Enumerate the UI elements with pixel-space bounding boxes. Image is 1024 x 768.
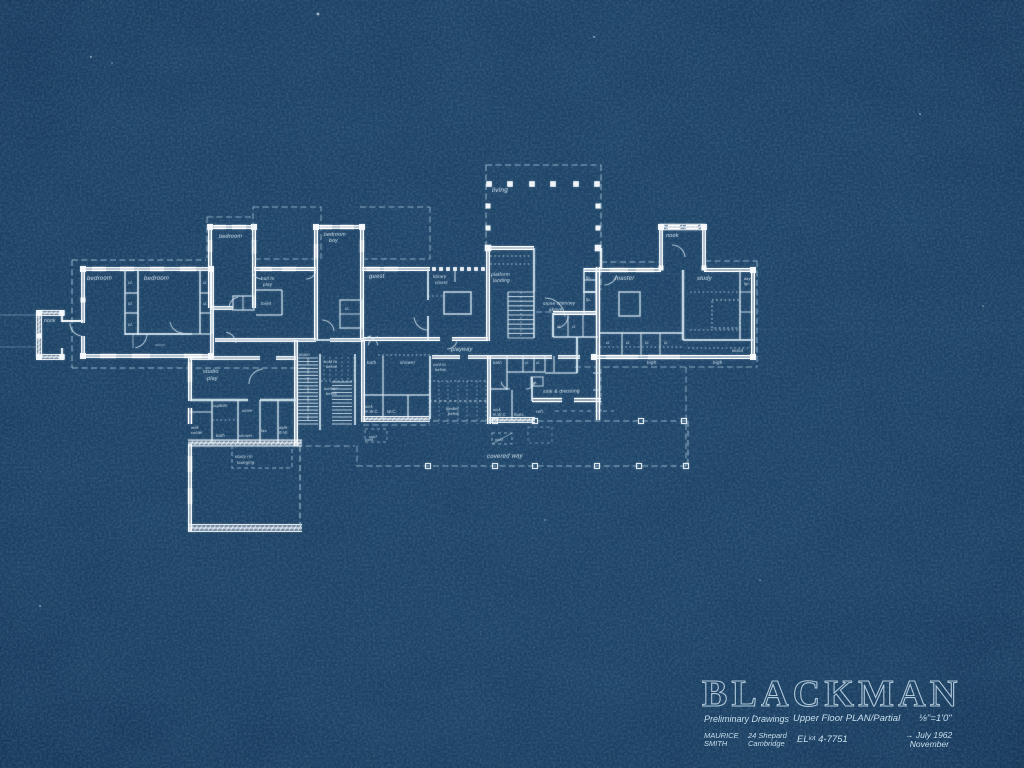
svg-text:below: below [326,364,338,369]
svg-text:lgt.: lgt. [744,282,750,286]
svg-text:landing: landing [493,278,510,284]
svg-text:cl.: cl. [345,306,350,311]
svg-text:cl.: cl. [664,340,669,345]
svg-text:fp.: fp. [586,275,591,280]
svg-text:living: living [492,187,508,194]
svg-text:bedroom: bedroom [87,276,112,282]
svg-text:hall to: hall to [261,276,275,281]
svg-text:lav.: lav. [261,428,268,433]
svg-text:bath: bath [493,360,503,365]
svg-text:R.W.C.: R.W.C. [493,412,507,417]
svg-text:play: play [262,282,273,287]
svg-text:cl.: cl. [626,340,631,345]
svg-text:below: below [435,367,447,372]
svg-text:shower: shower [400,360,416,365]
svg-text:cl.: cl. [645,340,650,345]
svg-text:nook: nook [666,233,679,239]
svg-text:W.C.: W.C. [387,409,397,414]
svg-text:day: day [744,277,752,281]
svg-text:cl.: cl. [525,360,530,365]
svg-text:down: down [299,352,310,357]
svg-text:cl.: cl. [536,360,541,365]
svg-text:master: master [615,276,635,282]
svg-text:bedroom: bedroom [219,234,242,240]
svg-text:cl.: cl. [203,301,208,306]
svg-text:below: below [448,411,460,416]
svg-text:stove: stove [242,408,253,413]
svg-text:library: library [433,274,447,279]
svg-text:bedroom: bedroom [144,276,169,282]
svg-text:R.W.: R.W. [279,430,288,435]
svg-text:closet: closet [435,280,448,285]
svg-text:fp.: fp. [586,297,591,302]
svg-text:toilet: toilet [261,301,272,306]
svg-text:below: below [326,391,338,396]
svg-text:playway: playway [450,347,474,353]
svg-text:cl.: cl. [557,324,562,329]
svg-text:cl.: cl. [128,322,133,327]
svg-text:guest: guest [369,274,385,280]
svg-text:bath: bath [367,360,377,365]
svg-text:cl.: cl. [203,280,208,285]
svg-text:cl.: cl. [128,301,133,306]
svg-text:stone chimney: stone chimney [543,300,576,306]
svg-text:shower: shower [239,434,253,438]
svg-text:study rm: study rm [235,454,253,459]
svg-text:refr.: refr. [536,409,545,414]
svg-text:bath: bath [216,433,226,438]
svg-text:high: high [713,360,723,365]
svg-text:platform: platform [490,272,510,278]
svg-text:nook: nook [44,318,56,324]
svg-text:lounging: lounging [237,460,255,465]
svg-text:cl.: cl. [572,324,577,329]
svg-text:flues: flues [514,412,525,417]
svg-text:cl.: cl. [606,340,611,345]
svg-text:boy: boy [329,238,338,244]
svg-text:covered way: covered way [487,453,524,460]
svg-text:cupbds: cupbds [213,403,227,408]
svg-text:wood: wood [732,348,744,353]
svg-text:void: void [369,435,378,439]
svg-text:R.W.C.: R.W.C. [365,409,379,414]
svg-text:study: study [697,276,713,282]
svg-text:high: high [647,360,657,365]
svg-text:cl.: cl. [128,280,133,285]
svg-text:cooler: cooler [191,430,203,435]
svg-text:studio: studio [203,369,219,375]
svg-text:-play: -play [205,376,218,382]
svg-text:sink & dressing: sink & dressing [543,388,580,395]
